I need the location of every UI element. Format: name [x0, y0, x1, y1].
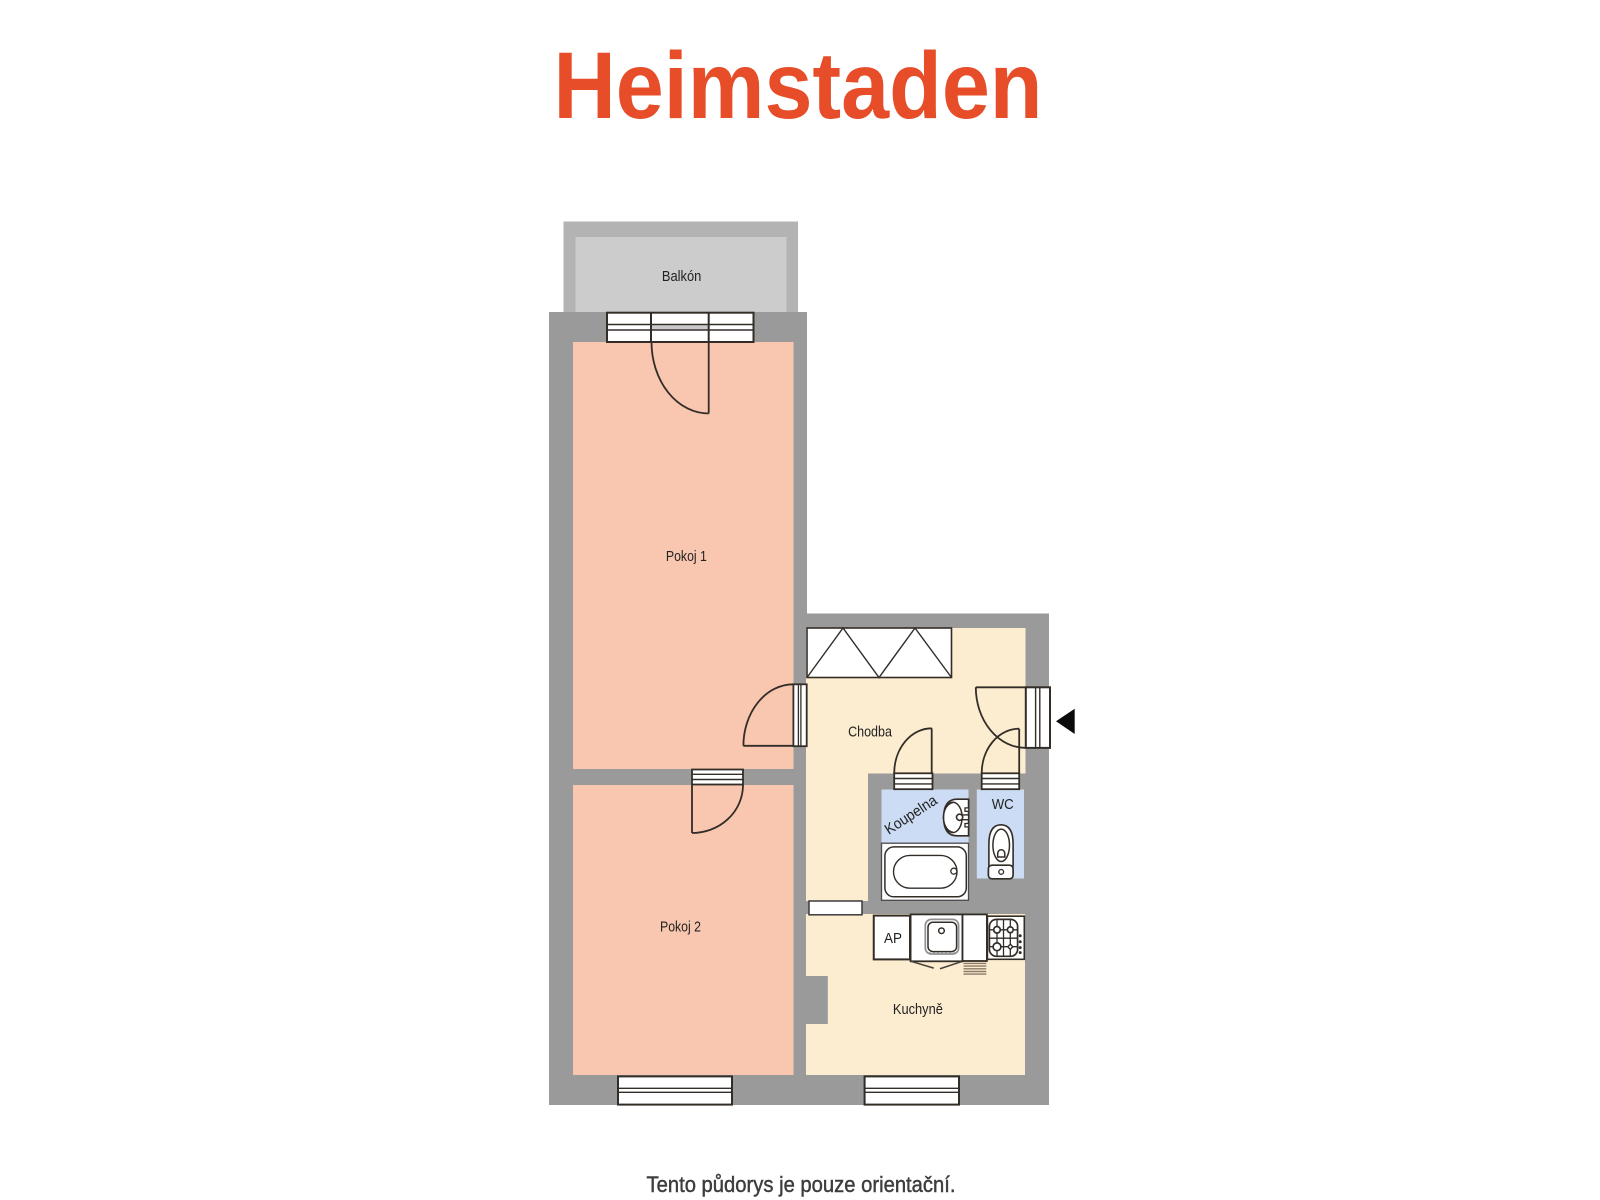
svg-text:Kuchyně: Kuchyně — [893, 1001, 943, 1018]
svg-text:Heimstaden: Heimstaden — [554, 33, 1043, 139]
svg-text:AP: AP — [884, 930, 902, 947]
svg-text:Tento půdorys je pouze orienta: Tento půdorys je pouze orientační. — [647, 1172, 956, 1197]
svg-text:Pokoj 1: Pokoj 1 — [666, 548, 707, 565]
svg-text:Pokoj 2: Pokoj 2 — [660, 919, 701, 936]
svg-text:WC: WC — [992, 796, 1014, 813]
svg-text:Chodba: Chodba — [848, 724, 892, 741]
svg-text:Balkón: Balkón — [662, 268, 702, 285]
